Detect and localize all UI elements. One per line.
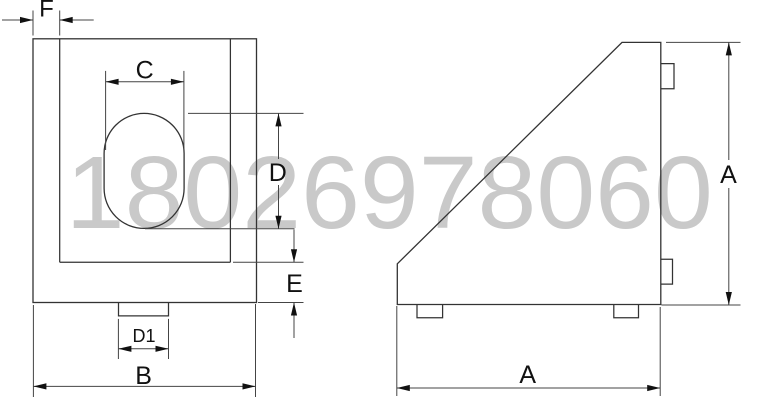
svg-text:D1: D1 (132, 326, 155, 346)
svg-text:B: B (135, 362, 152, 390)
svg-text:D: D (269, 159, 287, 187)
svg-text:A: A (519, 361, 536, 389)
svg-text:A: A (720, 161, 737, 189)
svg-text:E: E (286, 270, 303, 298)
svg-text:F: F (39, 0, 54, 23)
svg-text:18026978060: 18026978060 (66, 135, 713, 250)
svg-text:C: C (136, 57, 154, 85)
